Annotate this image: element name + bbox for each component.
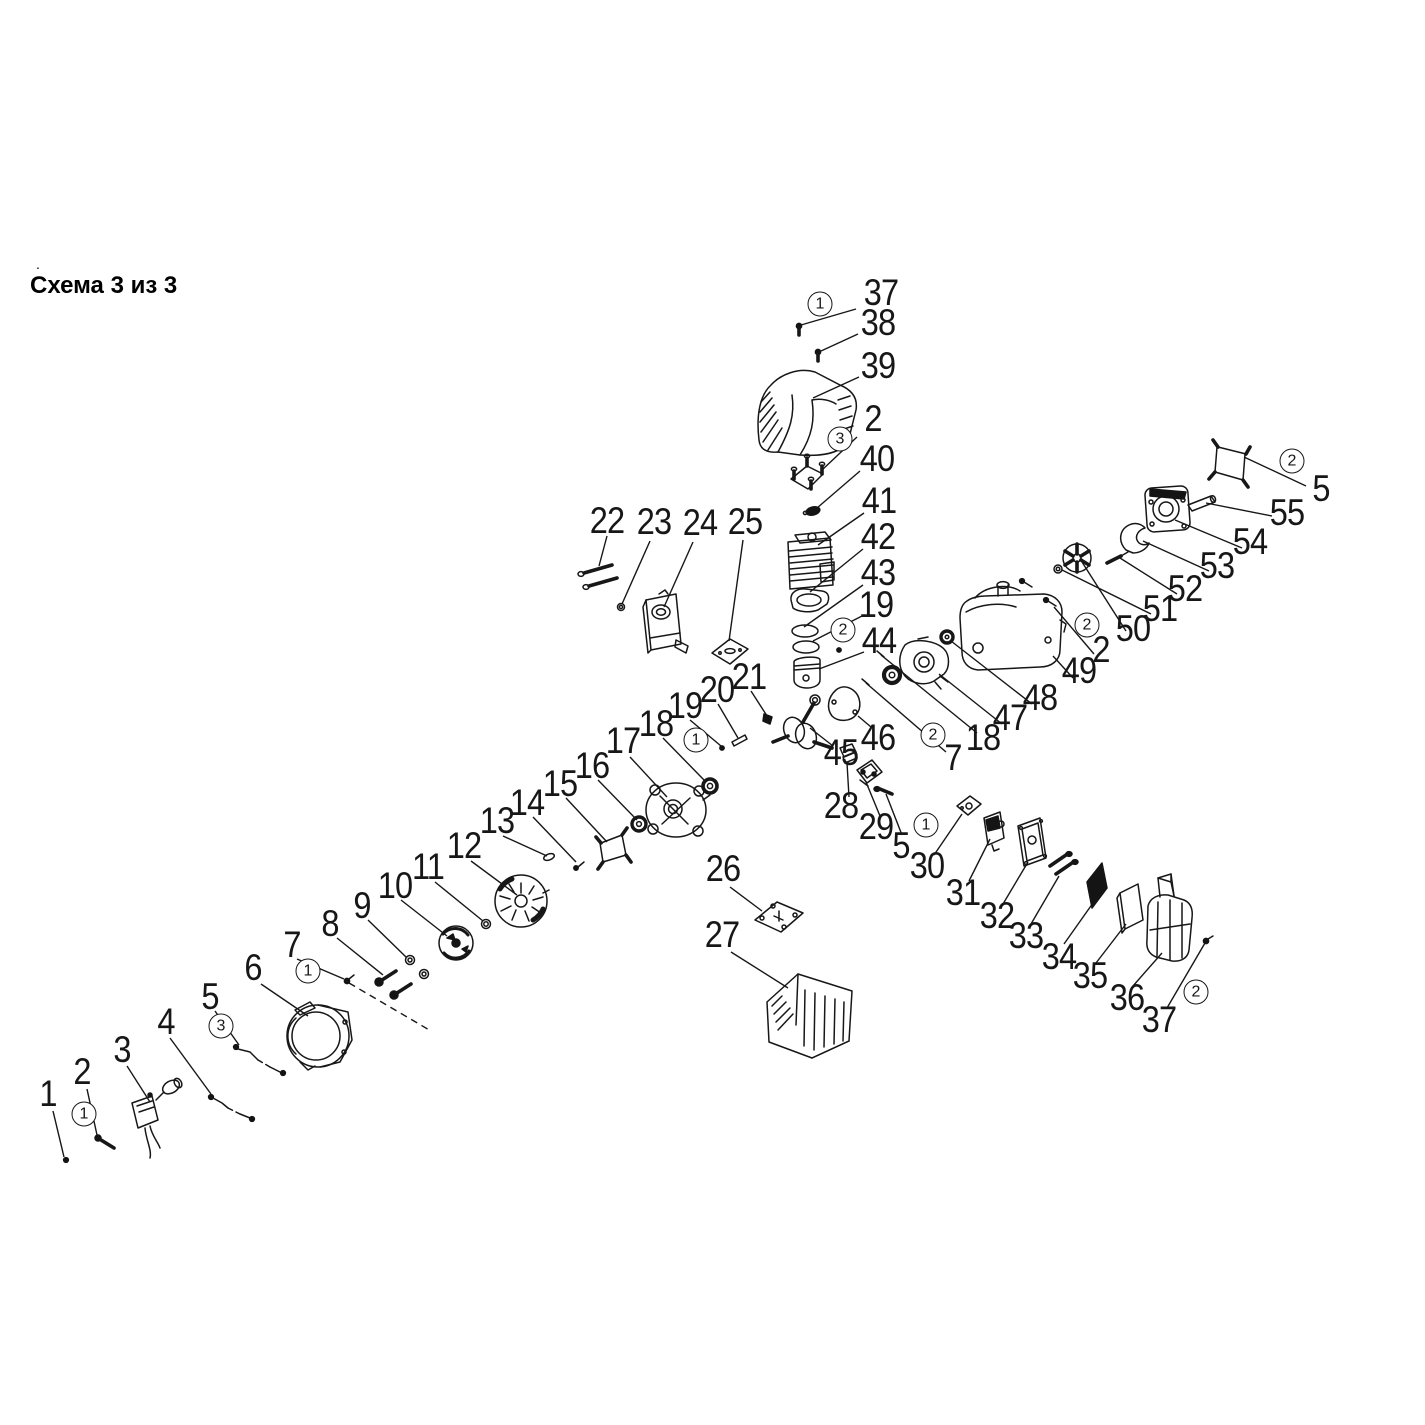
part-51-nut — [1054, 565, 1062, 573]
part-23-nut — [618, 604, 625, 611]
part-label-7: 7 — [283, 924, 300, 966]
part-5-bracket-topright — [1209, 440, 1250, 487]
part-label-18: 18 — [639, 703, 673, 745]
part-label-36: 36 — [1110, 977, 1144, 1019]
part-26-gasket-plate — [755, 902, 803, 932]
part-36-airfilter-cover — [1147, 874, 1192, 961]
part-label-53: 53 — [1200, 545, 1234, 587]
part-21-clip — [763, 714, 772, 724]
part-10-clutch-assembly — [439, 926, 473, 960]
part-label-46: 46 — [861, 717, 895, 759]
part-label-2: 2 — [1092, 629, 1109, 671]
part-14-screw — [574, 862, 584, 870]
part-4-throttle-rod — [209, 1095, 255, 1122]
part-50-fan-wheel — [1063, 544, 1091, 572]
circled-marker-1: 1 — [72, 1102, 97, 1127]
part-label-29: 29 — [859, 806, 893, 848]
part-40-mount-plate — [791, 454, 825, 489]
part-label-27: 27 — [705, 914, 739, 956]
part-8-bolts — [375, 971, 411, 999]
part-label-5: 5 — [201, 976, 218, 1018]
part-label-28: 28 — [824, 785, 858, 827]
part-label-34: 34 — [1042, 936, 1076, 978]
part-35-filter-element — [1117, 884, 1143, 933]
circled-marker-1: 1 — [684, 728, 709, 753]
part-label-40: 40 — [860, 438, 894, 480]
part-13-woodruff-key — [543, 852, 555, 861]
part-label-2: 2 — [864, 398, 881, 440]
part-2-bolt-left — [95, 1135, 114, 1148]
part-1-screw — [63, 1157, 68, 1162]
part-label-49: 49 — [1062, 650, 1096, 692]
part-22-bolts — [578, 565, 617, 589]
part-label-25: 25 — [728, 501, 762, 543]
part-label-52: 52 — [1168, 568, 1202, 610]
part-label-6: 6 — [244, 947, 261, 989]
part-17-crankcase-half — [646, 783, 710, 837]
part-label-11: 11 — [412, 846, 444, 888]
part-label-30: 30 — [910, 845, 944, 887]
part-31-carburetor — [984, 812, 1004, 851]
part-27-bottom-cover — [767, 974, 852, 1058]
part-label-44: 44 — [862, 620, 896, 662]
part-label-35: 35 — [1073, 955, 1107, 997]
part-label-55: 55 — [1270, 492, 1304, 534]
part-label-17: 17 — [606, 720, 640, 762]
circled-marker-3: 3 — [209, 1014, 234, 1039]
part-label-16: 16 — [575, 745, 609, 787]
part-12-flywheel — [495, 875, 549, 927]
part-2-screw-dot — [837, 648, 842, 653]
part-49-fuel-tank — [960, 582, 1066, 670]
part-15-stud-bracket — [596, 828, 631, 869]
part-41-spark-plug-terminal — [803, 505, 820, 516]
part-5-bolt-right — [874, 787, 892, 794]
part-label-15: 15 — [543, 763, 577, 805]
part-label-21: 21 — [732, 656, 766, 698]
part-24-muffler — [643, 590, 688, 653]
circled-marker-1: 1 — [914, 813, 939, 838]
part-3-ignition-coil — [132, 1077, 183, 1158]
part-label-5: 5 — [892, 825, 909, 867]
part-9-washers — [406, 956, 429, 979]
part-label-38: 38 — [861, 302, 895, 344]
circled-marker-2: 2 — [1184, 980, 1209, 1005]
part-label-9: 9 — [353, 885, 370, 927]
part-18-bearing-right — [884, 667, 900, 683]
part-label-54: 54 — [1233, 521, 1267, 563]
part-label-3: 3 — [113, 1029, 130, 1071]
part-44-piston — [794, 657, 820, 688]
part-label-24: 24 — [683, 502, 717, 544]
parts-drawings-layer — [0, 0, 1425, 1425]
part-38-screw-top — [815, 349, 820, 361]
part-7-screw-left — [344, 975, 354, 984]
circled-marker-2: 2 — [831, 618, 856, 643]
part-43-cylinder-gasket — [791, 589, 829, 612]
part-label-31: 31 — [946, 872, 980, 914]
part-label-20: 20 — [700, 669, 734, 711]
part-2-tank-bolts — [1020, 579, 1056, 606]
part-label-37: 37 — [1142, 999, 1176, 1041]
part-42-cylinder — [788, 532, 834, 589]
part-19-piston-rings — [792, 625, 819, 653]
part-label-12: 12 — [447, 825, 481, 867]
part-label-13: 13 — [480, 800, 514, 842]
part-label-22: 22 — [590, 500, 624, 542]
circled-marker-2: 2 — [1280, 449, 1305, 474]
circled-marker-2: 2 — [921, 723, 946, 748]
part-label-26: 26 — [706, 848, 740, 890]
part-33-screws — [1050, 852, 1078, 874]
part-34-foam-filter — [1087, 863, 1107, 908]
part-54-clutch-drum — [1145, 486, 1191, 533]
part-label-1: 1 — [39, 1073, 56, 1115]
part-18-bearing-center — [703, 779, 717, 793]
part-label-39: 39 — [861, 345, 895, 387]
part-label-7: 7 — [944, 737, 961, 779]
part-29-insulator — [857, 760, 882, 786]
circled-marker-1: 1 — [808, 292, 833, 317]
part-46-crankcase-gasket — [829, 687, 860, 720]
part-47-crankcase — [900, 637, 949, 689]
part-55-drive-shaft — [1188, 495, 1216, 511]
part-label-45: 45 — [824, 732, 858, 774]
circled-marker-1: 1 — [296, 959, 321, 984]
part-6-fan-housing — [287, 1002, 352, 1070]
part-label-10: 10 — [378, 865, 412, 907]
part-16-oil-seal — [632, 817, 646, 831]
circled-marker-3: 3 — [828, 427, 853, 452]
circled-marker-2: 2 — [1075, 613, 1100, 638]
part-label-23: 23 — [637, 501, 671, 543]
part-label-48: 48 — [1023, 677, 1057, 719]
part-label-2: 2 — [73, 1051, 90, 1093]
part-30-gasket — [957, 796, 981, 815]
part-11-nut — [482, 920, 491, 929]
part-label-33: 33 — [1009, 915, 1043, 957]
parts-diagram-page: . Схема 3 из 3 — [0, 0, 1425, 1425]
part-37-screw-top — [796, 323, 801, 335]
part-37-screw-right — [1203, 936, 1213, 944]
part-label-14: 14 — [510, 782, 544, 824]
part-52-spring-pin — [1107, 552, 1128, 563]
part-label-4: 4 — [157, 1001, 174, 1043]
part-label-8: 8 — [321, 903, 338, 945]
part-32-airfilter-base — [1018, 818, 1046, 866]
part-5-choke-rod — [234, 1045, 286, 1076]
part-53-clamp — [1121, 524, 1149, 553]
part-label-5: 5 — [1312, 468, 1329, 510]
part-48-oil-seal — [941, 631, 953, 643]
part-19-pin — [720, 746, 725, 751]
part-20-key — [732, 735, 747, 746]
